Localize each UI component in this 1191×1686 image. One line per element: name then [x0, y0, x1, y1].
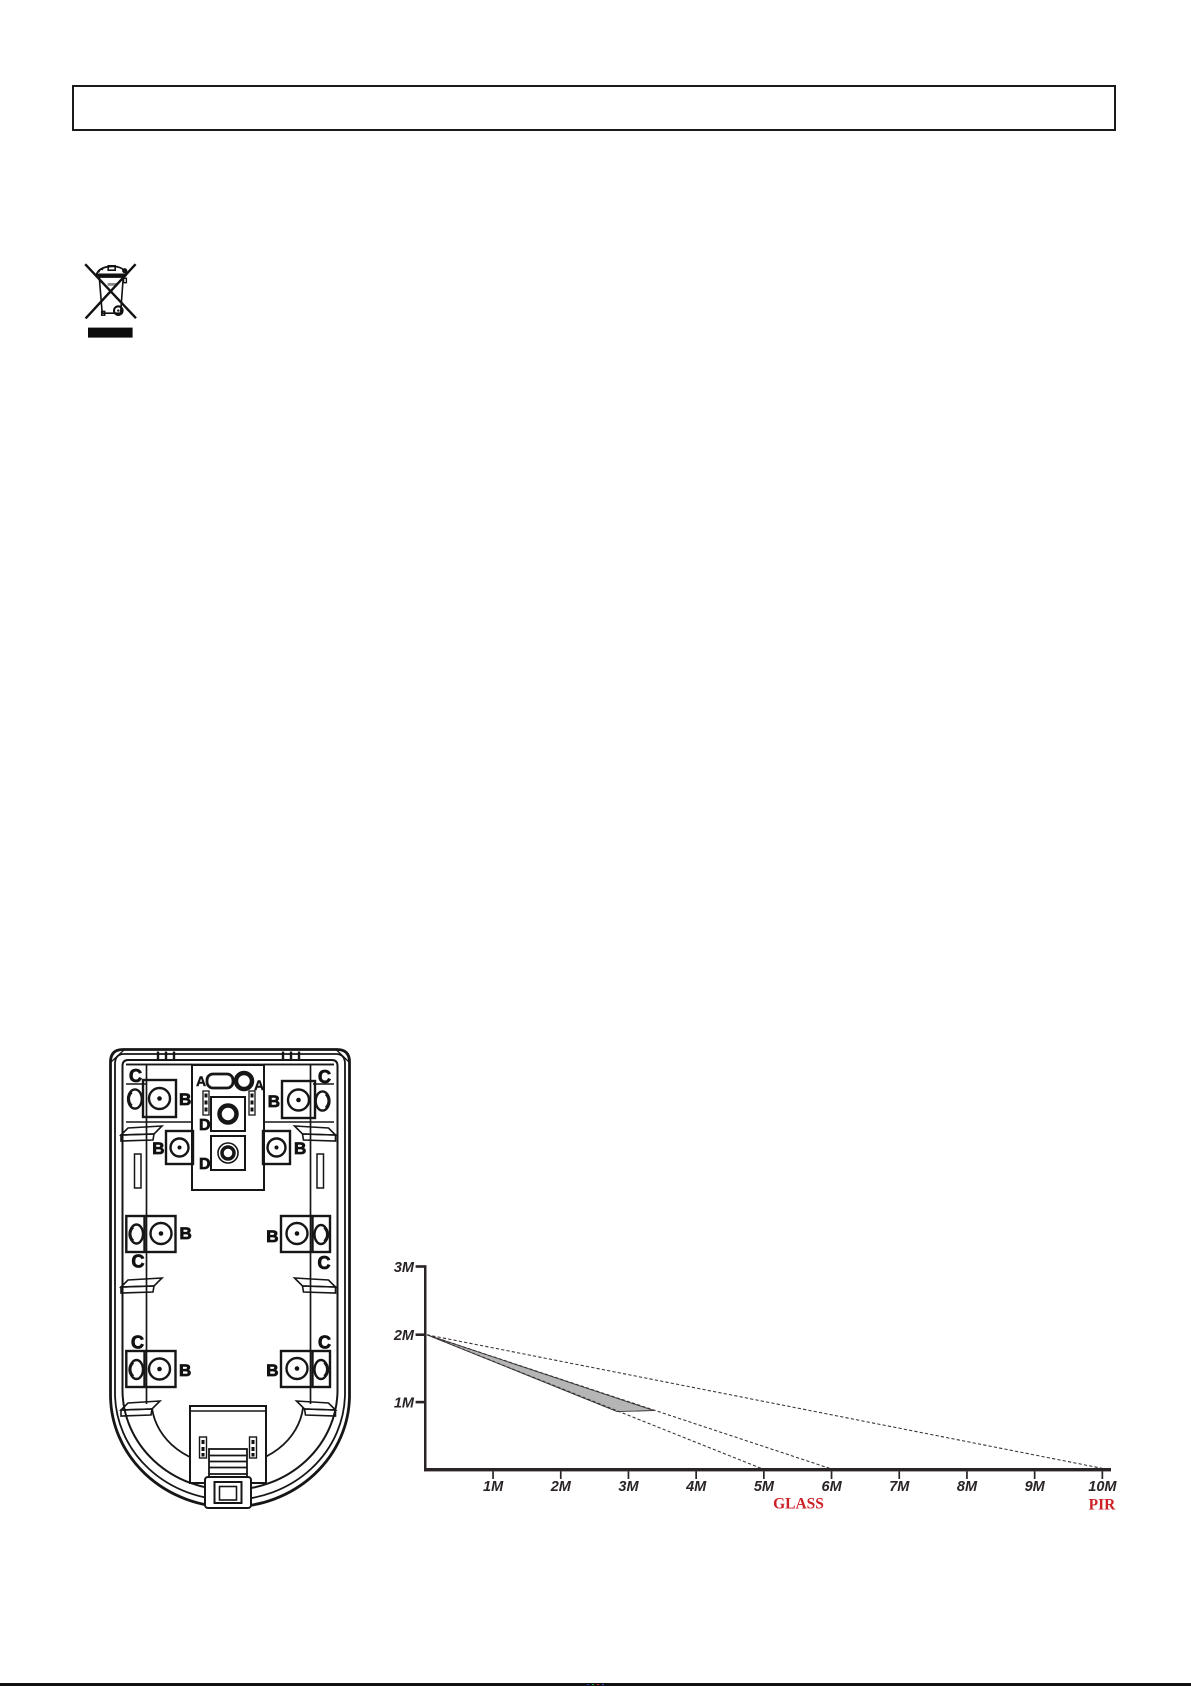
svg-text:10M: 10M	[1088, 1479, 1117, 1495]
svg-text:1M: 1M	[394, 1395, 415, 1411]
svg-text:B: B	[152, 1139, 164, 1158]
svg-text:B: B	[294, 1139, 306, 1158]
svg-text:2M: 2M	[550, 1479, 572, 1495]
svg-text:B: B	[266, 1361, 278, 1380]
svg-text:C: C	[318, 1253, 331, 1273]
svg-text:C: C	[132, 1252, 145, 1272]
svg-text:GLASS: GLASS	[773, 1495, 824, 1512]
svg-text:6M: 6M	[822, 1479, 843, 1495]
svg-text:9M: 9M	[1025, 1479, 1046, 1495]
svg-text:PIR: PIR	[1089, 1497, 1117, 1514]
svg-text:3M: 3M	[618, 1479, 639, 1495]
svg-text:C: C	[129, 1066, 142, 1086]
svg-text:C: C	[318, 1333, 331, 1353]
svg-text:C: C	[318, 1067, 331, 1087]
svg-text:D: D	[199, 1117, 211, 1134]
svg-text:D: D	[199, 1156, 211, 1173]
svg-text:B: B	[180, 1224, 192, 1243]
svg-text:B: B	[266, 1227, 278, 1246]
svg-text:8M: 8M	[957, 1479, 978, 1495]
svg-text:C: C	[131, 1333, 144, 1353]
svg-text:1M: 1M	[483, 1479, 504, 1495]
svg-text:B: B	[179, 1090, 191, 1109]
svg-text:5M: 5M	[754, 1479, 775, 1495]
svg-text:2M: 2M	[393, 1328, 415, 1344]
svg-text:3M: 3M	[394, 1260, 415, 1276]
svg-text:B: B	[179, 1361, 191, 1380]
svg-text:A: A	[196, 1073, 206, 1089]
svg-text:7M: 7M	[889, 1479, 910, 1495]
svg-text:B: B	[268, 1092, 280, 1111]
svg-text:4M: 4M	[685, 1479, 707, 1495]
